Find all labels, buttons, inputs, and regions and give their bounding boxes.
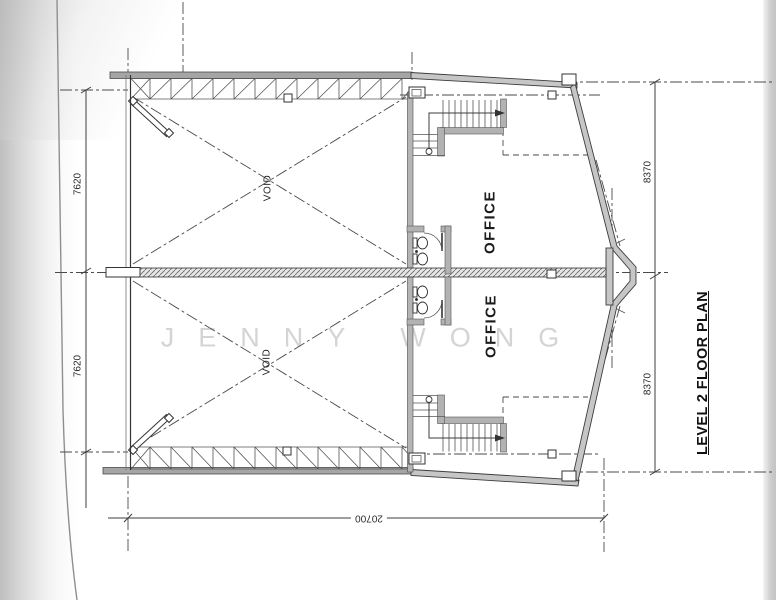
dimension-left-upper: 7620 — [73, 173, 84, 195]
dimension-line-right — [650, 79, 660, 475]
office-label-lower: OFFICE — [483, 294, 500, 358]
toilet-block-lower — [407, 277, 451, 325]
bottom-wall-truss — [103, 447, 413, 474]
void-label-lower: VOID — [262, 349, 273, 375]
top-wall-truss — [110, 72, 412, 99]
dashed-opening-upper — [503, 130, 588, 155]
corner-brace-top — [129, 97, 174, 138]
office-label-upper: OFFICE — [482, 190, 499, 254]
stair-upper — [409, 87, 507, 156]
interior-wall — [408, 92, 414, 472]
void-label-upper: VOID — [263, 175, 274, 201]
dashed-opening-lower — [503, 397, 588, 445]
floor-plan-drawing — [0, 0, 776, 600]
party-wall — [106, 268, 606, 278]
right-wall — [562, 74, 636, 481]
bottom-slant-wall — [411, 470, 579, 487]
dimension-left-lower: 7620 — [73, 355, 84, 377]
dimension-bottom: 20700 — [351, 513, 387, 524]
dimension-right-upper: 8370 — [643, 161, 654, 183]
dimension-right-lower: 8370 — [643, 373, 654, 395]
plan-title: LEVEL 2 FLOOR PLAN — [695, 291, 711, 455]
top-slant-wall — [411, 73, 577, 89]
dimension-line-left — [81, 87, 91, 508]
scanned-floor-plan-page: JENNY WONG — [0, 0, 776, 600]
toilet-block-upper — [407, 226, 451, 274]
